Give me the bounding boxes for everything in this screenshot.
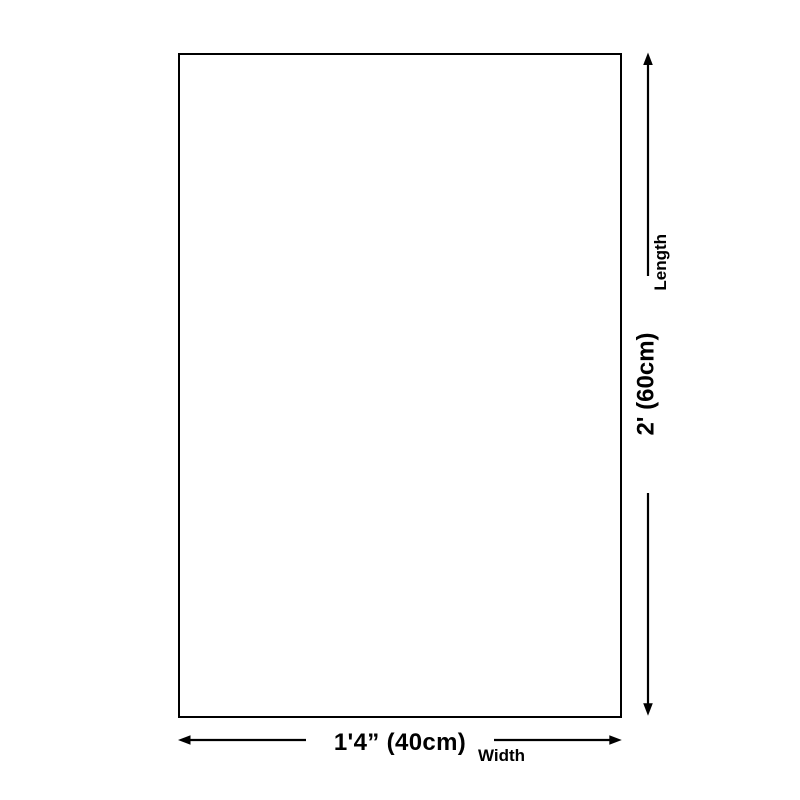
svg-text:Width: Width — [478, 746, 525, 765]
svg-text:1'4” (40cm): 1'4” (40cm) — [334, 729, 466, 756]
svg-text:Length: Length — [651, 234, 670, 291]
svg-text:2' (60cm): 2' (60cm) — [633, 332, 660, 435]
